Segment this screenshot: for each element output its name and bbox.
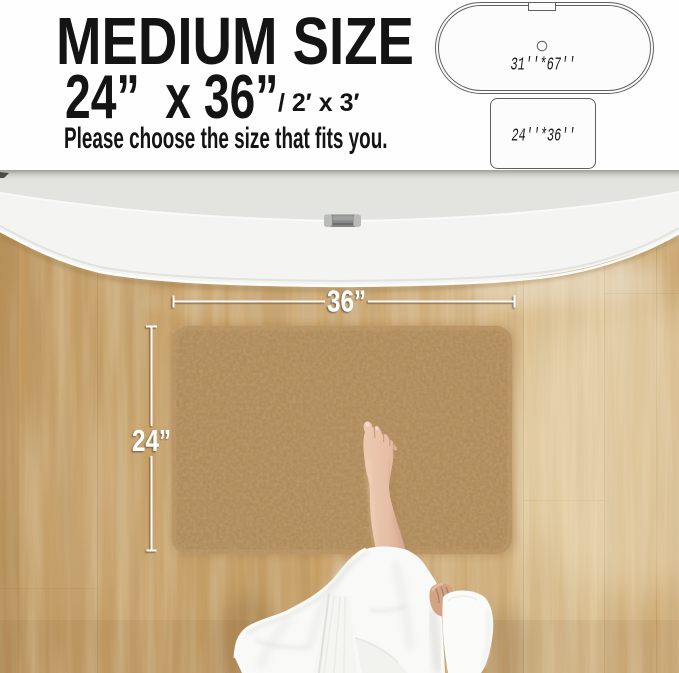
svg-text:24''*36'': 24''*36'' xyxy=(512,127,576,147)
svg-text:31''*67'': 31''*67'' xyxy=(511,55,576,76)
svg-text:24”: 24” xyxy=(132,424,171,458)
svg-text:36”: 36” xyxy=(327,285,366,319)
